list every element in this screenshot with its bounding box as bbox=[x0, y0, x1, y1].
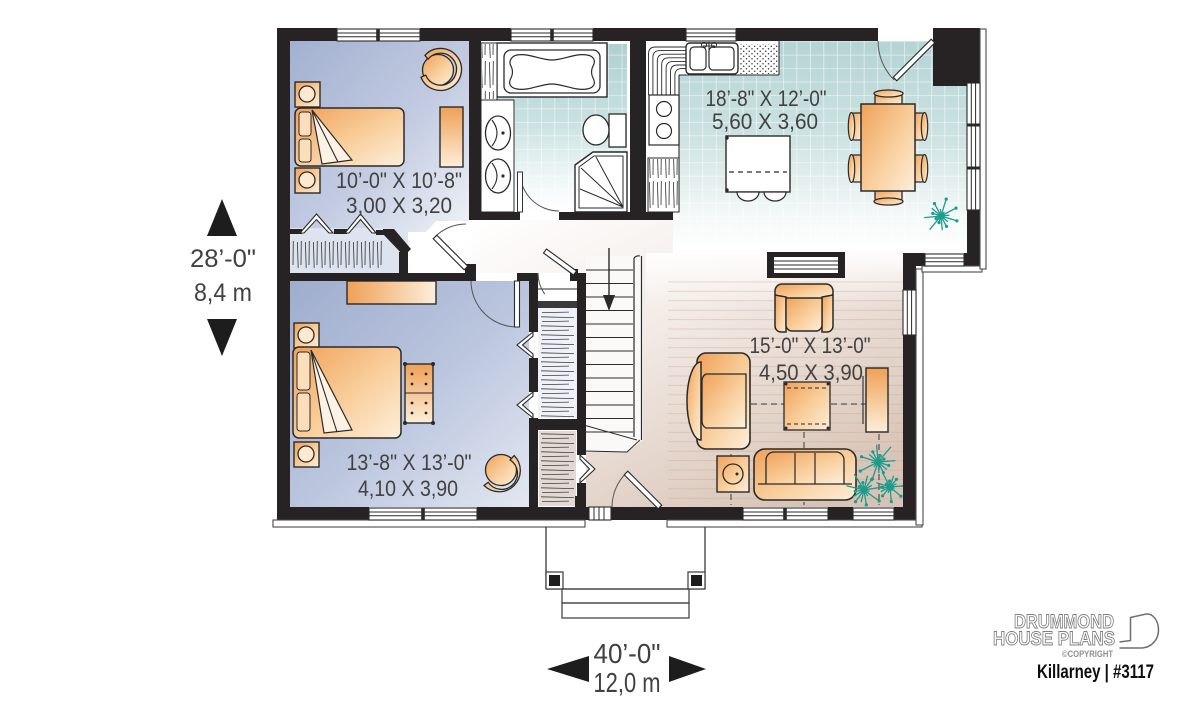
svg-text:3,00 X 3,20: 3,00 X 3,20 bbox=[346, 193, 452, 218]
svg-text:4,10 X 3,90: 4,10 X 3,90 bbox=[358, 476, 458, 501]
svg-text:15’-0" X 13’-0": 15’-0" X 13’-0" bbox=[750, 333, 871, 358]
svg-text:5,60 X 3,60: 5,60 X 3,60 bbox=[712, 109, 818, 134]
svg-text:©COPYRIGHT: ©COPYRIGHT bbox=[1062, 649, 1113, 659]
svg-text:Killarney | #3117: Killarney | #3117 bbox=[1037, 662, 1154, 683]
svg-text:28’-0": 28’-0" bbox=[190, 245, 256, 273]
svg-text:18’-8" X 12’-0": 18’-8" X 12’-0" bbox=[706, 86, 827, 111]
svg-text:12,0 m: 12,0 m bbox=[594, 667, 661, 698]
svg-text:HOUSE PLANS: HOUSE PLANS bbox=[993, 629, 1115, 650]
svg-text:8,4 m: 8,4 m bbox=[194, 279, 252, 307]
svg-text:10’-0" X 10’-8": 10’-0" X 10’-8" bbox=[336, 168, 462, 193]
svg-text:40’-0": 40’-0" bbox=[594, 638, 661, 669]
svg-text:4,50 X 3,90: 4,50 X 3,90 bbox=[759, 360, 863, 385]
svg-text:13’-8" X 13’-0": 13’-8" X 13’-0" bbox=[347, 450, 472, 475]
